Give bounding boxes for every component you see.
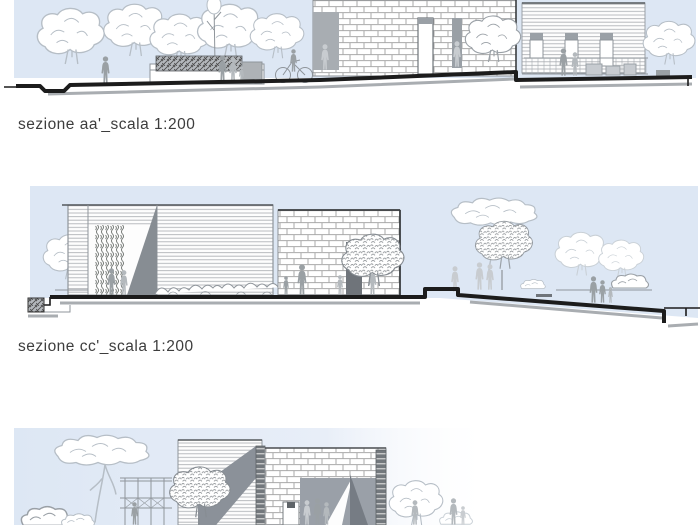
curb-block — [28, 298, 44, 312]
brick-building — [265, 448, 386, 525]
bench — [536, 294, 552, 297]
section-cc-caption: sezione cc'_scala 1:200 — [18, 338, 194, 356]
section-cc-drawing — [0, 180, 700, 330]
siding-building — [522, 3, 648, 76]
section-aa-drawing — [0, 0, 700, 96]
sky-slope — [440, 298, 698, 318]
ladder-strip — [256, 446, 265, 525]
door — [418, 18, 433, 74]
section-third-drawing — [0, 428, 700, 525]
ladder-strip — [376, 450, 386, 525]
louver-building — [62, 205, 273, 295]
section-aa-caption: sezione aa'_scala 1:200 — [18, 116, 195, 134]
sheet: sezione aa'_scala 1:200 — [0, 0, 700, 525]
door — [283, 502, 299, 525]
hedge — [156, 56, 242, 71]
